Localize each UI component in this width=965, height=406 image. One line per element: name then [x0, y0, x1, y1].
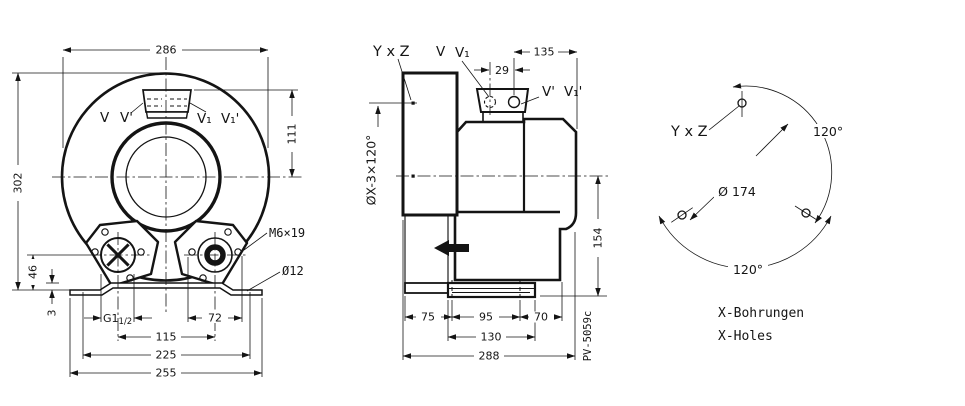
legend-de: X-Bohrungen: [718, 306, 804, 321]
label-port-v1-prime: V₁': [221, 111, 239, 127]
label-stud: M6×19: [269, 226, 305, 240]
hole-pattern-view: 120° 120° Ø 174 Y x Z X-Bohrungen X-Hole…: [659, 86, 846, 344]
dim-port-offset: 29: [495, 64, 509, 77]
doc-number: PV-5059c: [582, 311, 594, 362]
thread-main: G1: [103, 312, 119, 325]
dim-foot-center-spacing: 115: [156, 331, 177, 344]
dim-seg-right: 70: [534, 311, 548, 324]
hole-pattern-geometry: [659, 86, 832, 268]
base-rail: [448, 283, 535, 297]
label-port-v-prime-side: V': [542, 84, 555, 100]
label-port-v-side: V: [436, 44, 446, 60]
dim-bolt-circle-dia: Ø 174: [718, 184, 756, 199]
label-port-v1: V₁: [197, 111, 212, 127]
label-cover-holes: ØX-3×120°: [364, 135, 379, 206]
dim-foot-hole-spacing: 72: [208, 312, 222, 325]
side-view-outline: [403, 73, 576, 301]
dim-base-inner-width: 225: [156, 349, 177, 362]
front-view-outline: [62, 74, 269, 296]
front-view: 286 302 111 46 3 G11/2 72 115 225 255 M6…: [12, 44, 306, 380]
legend-en: X-Holes: [718, 329, 773, 344]
label-yxz-side: Y x Z: [372, 44, 410, 60]
label-port-v1-prime-side: V₁': [564, 84, 582, 100]
legend: X-Bohrungen X-Holes: [718, 306, 804, 344]
dim-overall-width: 286: [156, 44, 177, 57]
dim-seg-left: 75: [421, 311, 435, 324]
dim-foot-length: 130: [481, 331, 502, 344]
label-yxz-pattern: Y x Z: [670, 124, 708, 140]
dim-port-center-height: 111: [286, 124, 299, 145]
dim-axis-to-base: 154: [592, 228, 605, 249]
dim-overall-length: 288: [479, 350, 500, 363]
dim-overall-height: 302: [12, 173, 25, 194]
technical-drawing-canvas: 286 302 111 46 3 G11/2 72 115 225 255 M6…: [0, 0, 965, 406]
label-base-hole-dia: Ø12: [282, 264, 304, 278]
thread-sub: 1/2: [119, 317, 133, 327]
label-port-v1-side: V₁: [455, 45, 470, 61]
dim-base-overall-width: 255: [156, 367, 177, 380]
label-port-v-prime: V': [120, 110, 133, 126]
blower-drawing-svg: 286 302 111 46 3 G11/2 72 115 225 255 M6…: [0, 0, 965, 406]
dim-base-plate-thickness: 3: [46, 310, 59, 317]
right-foot: [175, 221, 247, 286]
dim-port-to-edge: 135: [534, 46, 555, 59]
dim-foot-port-height: 46: [27, 265, 40, 279]
dim-port-thread: G11/2: [103, 312, 132, 327]
label-port-v: V: [100, 110, 110, 126]
fan-cover: [403, 73, 457, 215]
side-view: 135 29 154 75 95 70 130 288 ØX-3×120° PV…: [364, 44, 609, 363]
dim-angle-bottom: 120°: [733, 262, 763, 277]
dim-seg-mid: 95: [479, 311, 493, 324]
dim-angle-right: 120°: [813, 124, 843, 139]
left-foot: [86, 221, 158, 286]
